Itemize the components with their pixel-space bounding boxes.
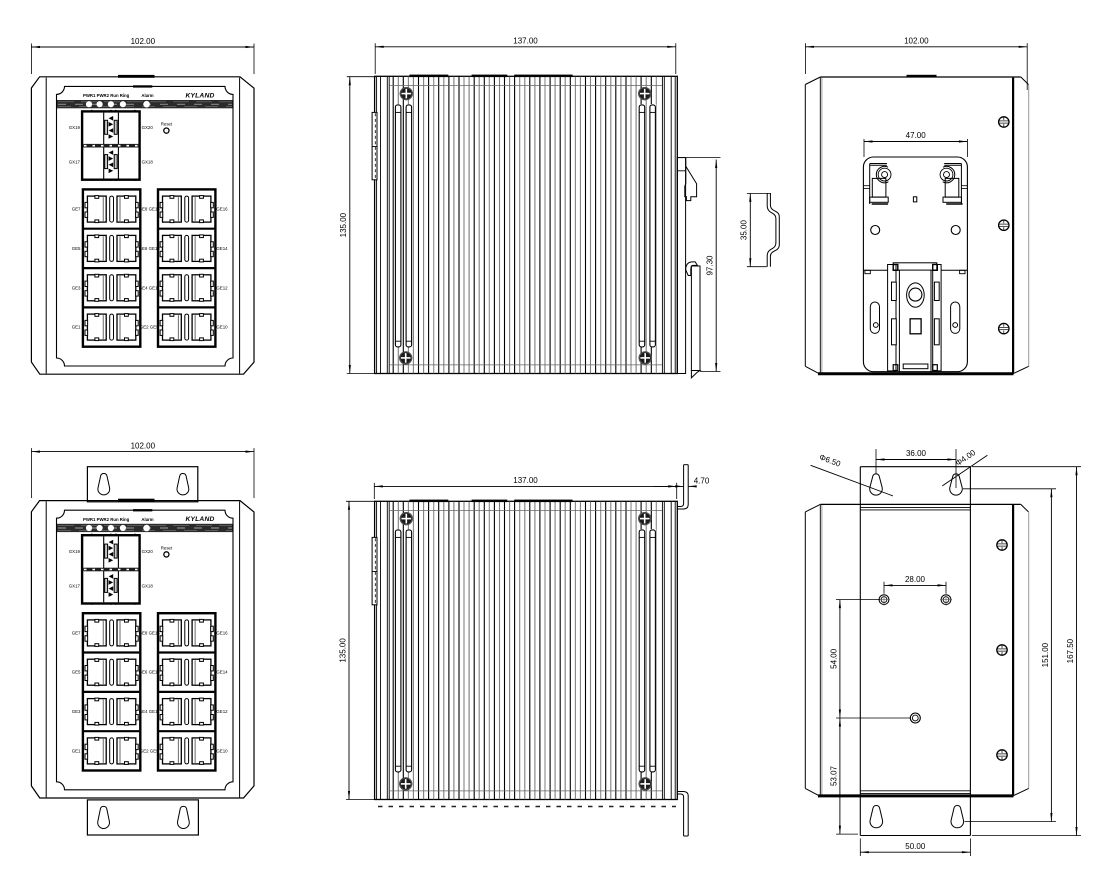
- svg-text:GE12: GE12: [216, 285, 228, 290]
- svg-text:GE7: GE7: [72, 630, 81, 635]
- svg-text:4.70: 4.70: [694, 476, 710, 485]
- svg-text:Reset: Reset: [161, 122, 173, 127]
- svg-text:PWR1 PWR2 Run Ring: PWR1 PWR2 Run Ring: [83, 517, 130, 522]
- svg-text:GE3: GE3: [72, 709, 81, 714]
- svg-text:GX17: GX17: [69, 160, 81, 165]
- svg-text:GE6 GE13: GE6 GE13: [139, 670, 161, 675]
- svg-text:137.00: 137.00: [513, 37, 538, 46]
- svg-text:Alarm: Alarm: [141, 517, 153, 522]
- svg-text:GE4 GE11: GE4 GE11: [139, 709, 160, 714]
- svg-text:GE4 GE11: GE4 GE11: [139, 285, 160, 290]
- svg-text:Reset: Reset: [161, 545, 173, 550]
- svg-text:47.00: 47.00: [906, 131, 927, 140]
- svg-text:KYLAND: KYLAND: [185, 92, 214, 99]
- svg-text:GX19: GX19: [69, 549, 81, 554]
- svg-text:GE6 GE13: GE6 GE13: [139, 246, 161, 251]
- svg-text:GX20: GX20: [142, 125, 154, 130]
- svg-text:GE14: GE14: [216, 246, 228, 251]
- svg-text:PWR1 PWR2 Run Ring: PWR1 PWR2 Run Ring: [83, 93, 130, 98]
- svg-text:GX17: GX17: [69, 583, 81, 588]
- svg-text:97.30: 97.30: [706, 255, 715, 276]
- svg-text:GE16: GE16: [216, 207, 228, 212]
- svg-text:137.00: 137.00: [513, 476, 538, 485]
- svg-text:135.00: 135.00: [339, 212, 348, 237]
- svg-text:35.00: 35.00: [740, 220, 749, 241]
- svg-text:GE10: GE10: [216, 748, 228, 753]
- svg-text:GE3: GE3: [72, 285, 81, 290]
- svg-text:151.00: 151.00: [1041, 642, 1050, 667]
- svg-text:53.07: 53.07: [829, 765, 838, 786]
- svg-text:102.00: 102.00: [131, 442, 156, 451]
- svg-text:GX18: GX18: [142, 160, 154, 165]
- svg-text:GE8 GE15: GE8 GE15: [139, 207, 161, 212]
- svg-text:GX19: GX19: [69, 125, 81, 130]
- svg-text:50.00: 50.00: [905, 842, 926, 851]
- svg-text:GE1: GE1: [72, 325, 81, 330]
- svg-text:GE7: GE7: [72, 207, 81, 212]
- svg-text:GX18: GX18: [142, 583, 154, 588]
- svg-text:GE8 GE15: GE8 GE15: [139, 630, 161, 635]
- svg-text:135.00: 135.00: [338, 638, 347, 663]
- svg-text:GE5: GE5: [72, 670, 81, 675]
- svg-text:GE10: GE10: [216, 325, 228, 330]
- svg-text:GE14: GE14: [216, 670, 228, 675]
- svg-text:167.50: 167.50: [1066, 638, 1075, 663]
- svg-text:GE2 GE9: GE2 GE9: [140, 325, 159, 330]
- svg-text:36.00: 36.00: [906, 449, 927, 458]
- svg-text:Alarm: Alarm: [141, 93, 153, 98]
- svg-text:GX20: GX20: [142, 549, 154, 554]
- svg-text:GE2 GE9: GE2 GE9: [140, 748, 159, 753]
- svg-text:102.00: 102.00: [904, 37, 929, 46]
- svg-text:GE1: GE1: [72, 748, 81, 753]
- svg-text:54.00: 54.00: [829, 648, 838, 669]
- svg-text:102.00: 102.00: [131, 37, 156, 46]
- svg-text:GE16: GE16: [216, 630, 228, 635]
- svg-text:KYLAND: KYLAND: [185, 516, 214, 523]
- svg-text:GE12: GE12: [216, 709, 228, 714]
- svg-text:28.00: 28.00: [905, 575, 926, 584]
- svg-text:GE5: GE5: [72, 246, 81, 251]
